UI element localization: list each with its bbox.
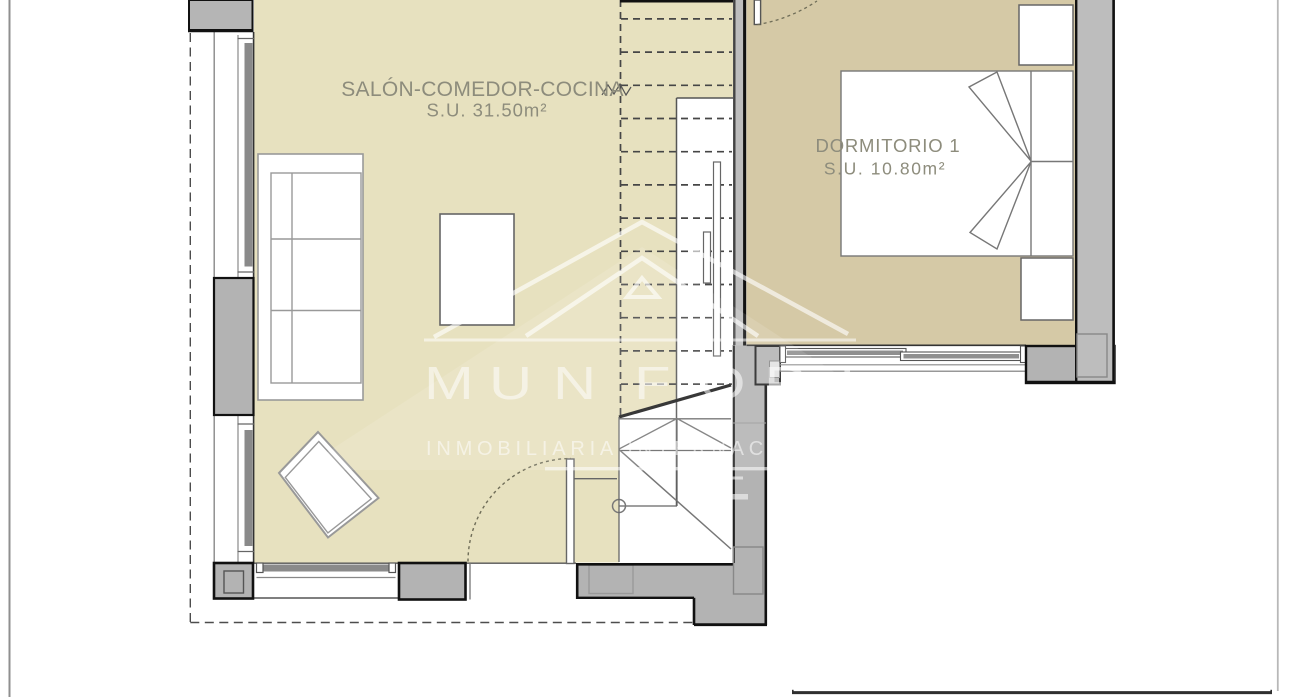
- svg-text:INMOBILIARIA INTERNACIONAL: INMOBILIARIA INTERNACIONAL: [426, 438, 852, 460]
- svg-text:SALÓN-COMEDOR-COCINA: SALÓN-COMEDOR-COCINA: [341, 78, 624, 101]
- svg-text:S.U. 31.50m²: S.U. 31.50m²: [427, 100, 548, 121]
- svg-text:DORMITORIO 1: DORMITORIO 1: [816, 135, 961, 156]
- svg-text:MUNFORT: MUNFORT: [424, 358, 865, 409]
- svg-text:S.U. 10.80m²: S.U. 10.80m²: [824, 159, 946, 179]
